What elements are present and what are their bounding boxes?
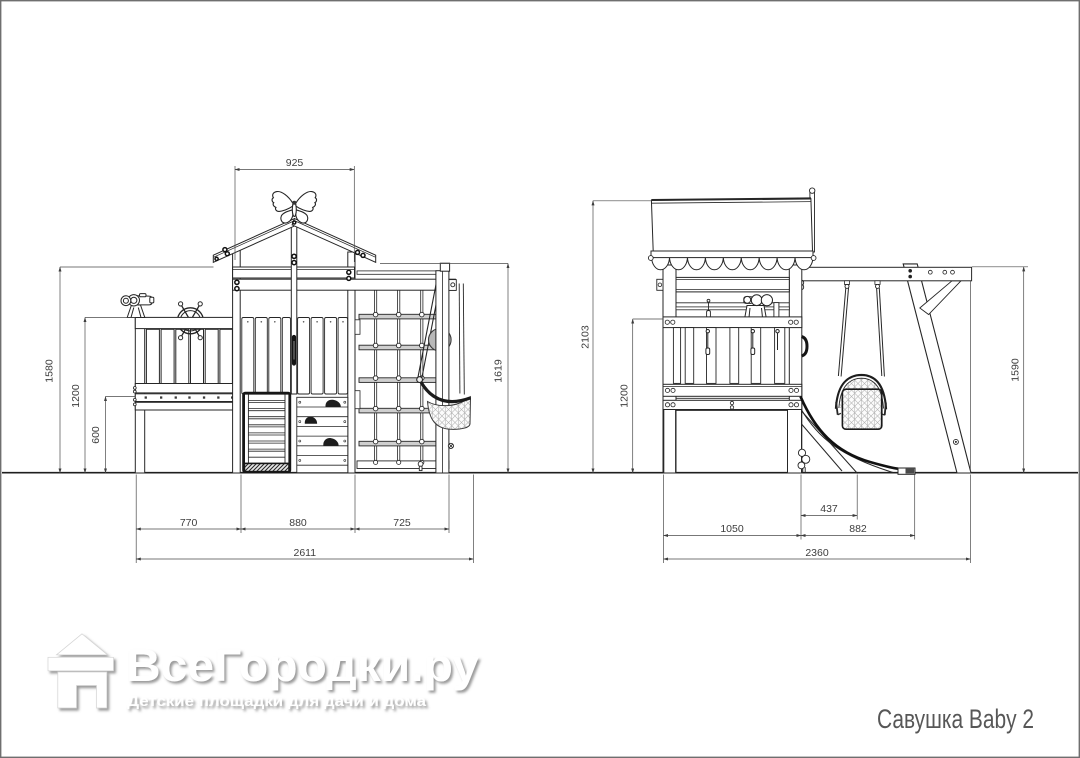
svg-text:Детские площадки для дачи и до: Детские площадки для дачи и дома [127,693,427,710]
svg-text:2103: 2103 [580,325,592,349]
svg-text:1590: 1590 [1010,358,1022,382]
svg-text:1050: 1050 [720,523,744,535]
svg-text:880: 880 [289,517,307,529]
svg-text:2360: 2360 [805,547,829,559]
svg-text:770: 770 [180,517,198,529]
svg-text:882: 882 [849,523,867,535]
svg-text:1200: 1200 [619,384,631,408]
svg-text:600: 600 [90,426,102,444]
svg-text:1580: 1580 [44,359,56,383]
svg-text:925: 925 [286,157,304,169]
svg-text:437: 437 [820,503,838,515]
svg-text:Савушка Baby 2: Савушка Baby 2 [877,704,1034,734]
svg-text:725: 725 [393,517,411,529]
svg-text:1619: 1619 [493,359,505,383]
svg-text:2611: 2611 [294,547,317,559]
svg-text:ВсеГородки.ру: ВсеГородки.ру [126,640,480,691]
svg-text:1200: 1200 [70,384,82,408]
